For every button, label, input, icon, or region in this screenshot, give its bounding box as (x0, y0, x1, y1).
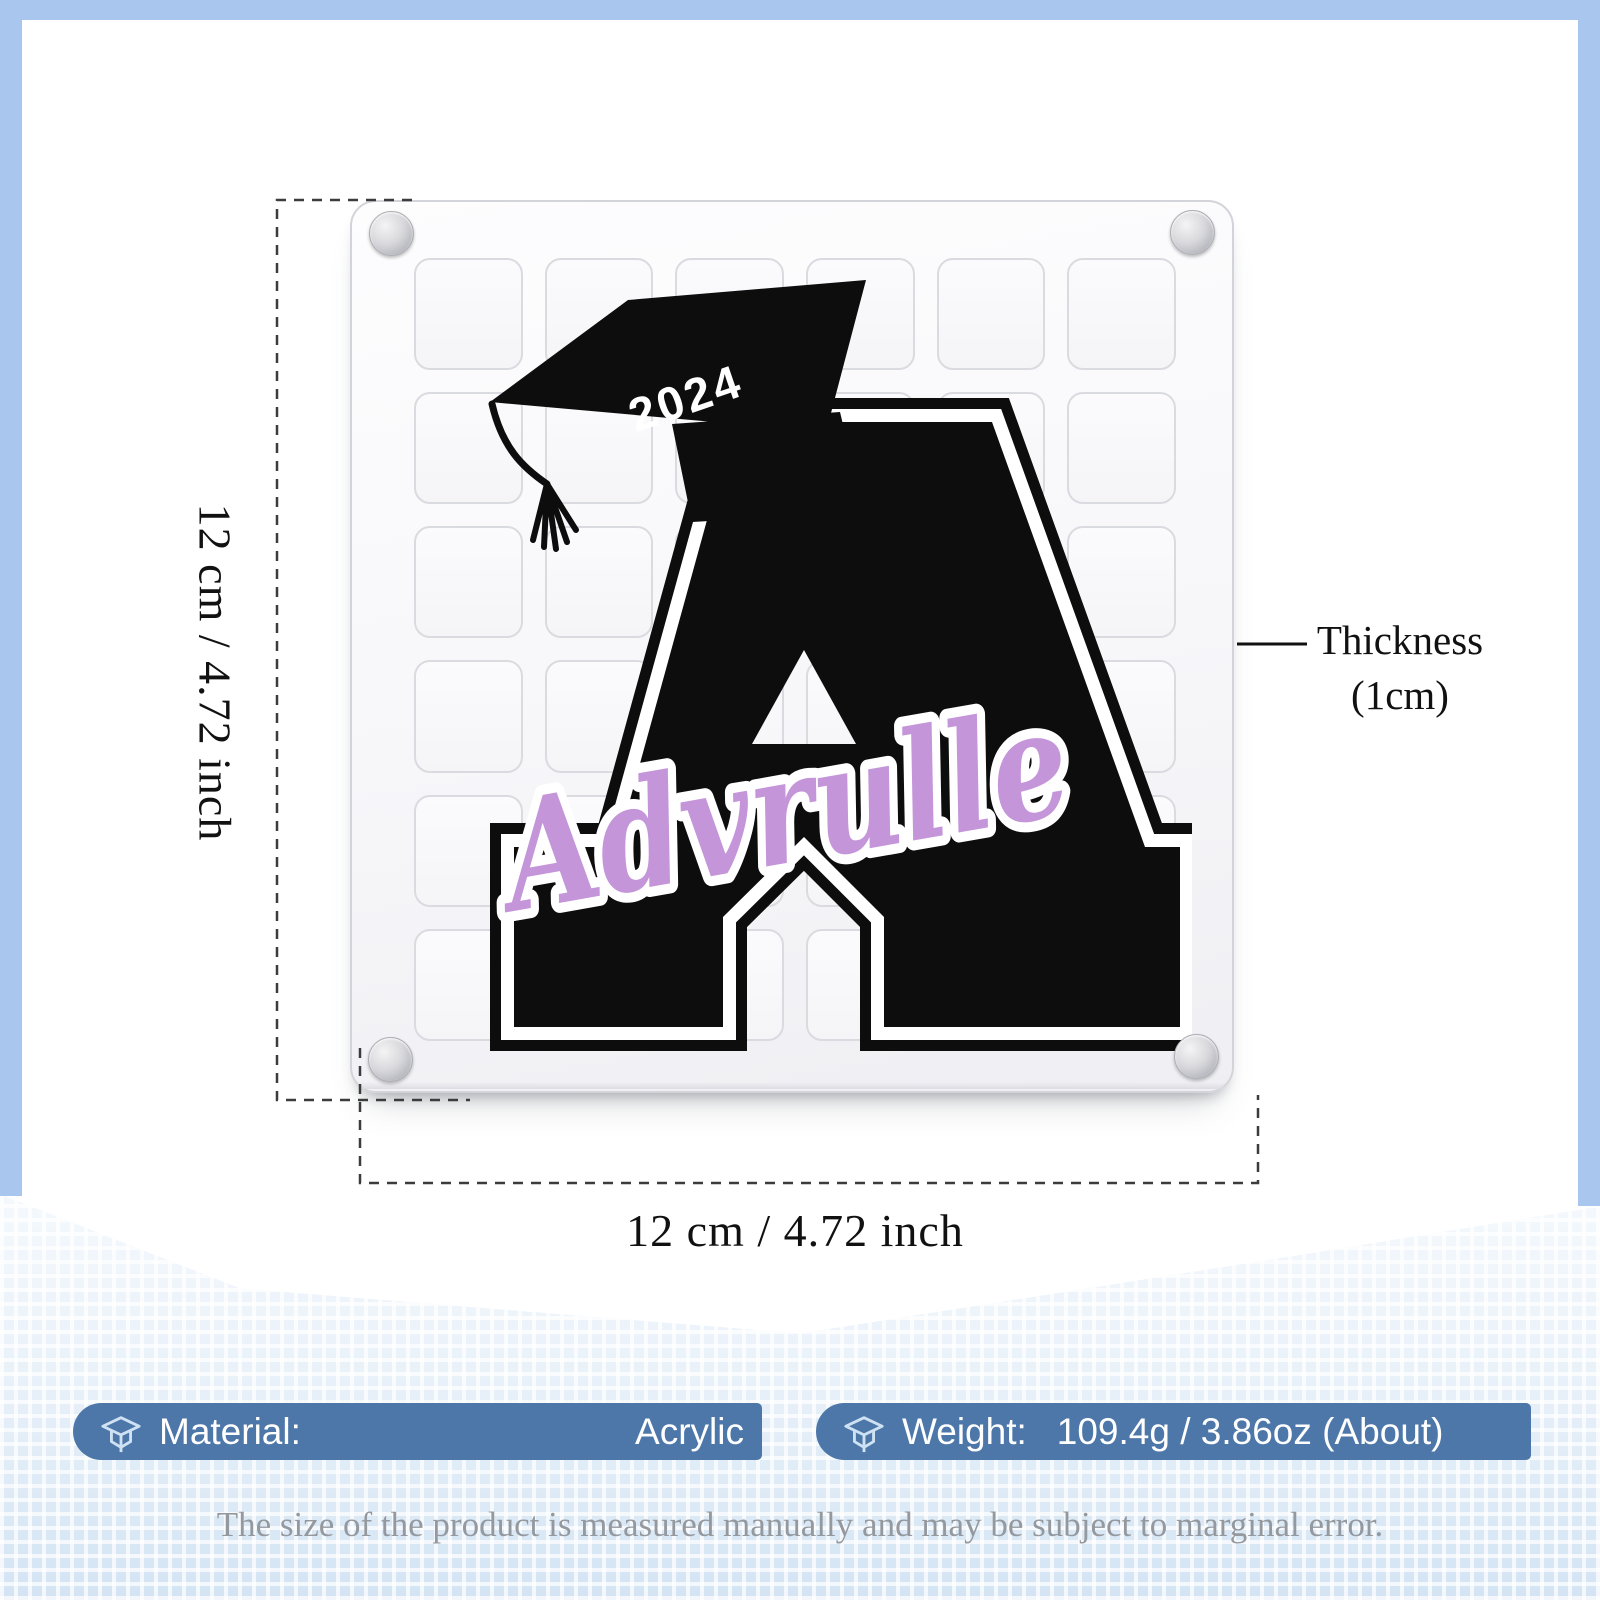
material-value: Acrylic (635, 1411, 744, 1453)
weight-spec-bar: Weight: 109.4g / 3.86oz (About) (816, 1403, 1531, 1460)
height-dimension-label: 12 cm / 4.72 inch (189, 453, 242, 893)
width-dimension-label: 12 cm / 4.72 inch (500, 1204, 1090, 1257)
graduation-cap-icon (99, 1410, 143, 1454)
weight-label: Weight: (902, 1411, 1027, 1453)
weight-value: 109.4g / 3.86oz (About) (1057, 1411, 1444, 1453)
thickness-label-text: Thickness (1290, 613, 1510, 668)
graduation-cap-icon (842, 1410, 886, 1454)
width-dimension-bracket (360, 1048, 1258, 1183)
material-label: Material: (159, 1411, 301, 1453)
product-infographic: 2024 Advrulle 12 cm / 4.72 inch 12 cm / … (0, 0, 1600, 1600)
thickness-label: Thickness (1cm) (1290, 613, 1510, 724)
disclaimer-text: The size of the product is measured manu… (0, 1505, 1600, 1545)
thickness-value-text: (1cm) (1290, 668, 1510, 723)
height-dimension-bracket (277, 200, 470, 1100)
material-spec-bar: Material: Acrylic (73, 1403, 762, 1460)
